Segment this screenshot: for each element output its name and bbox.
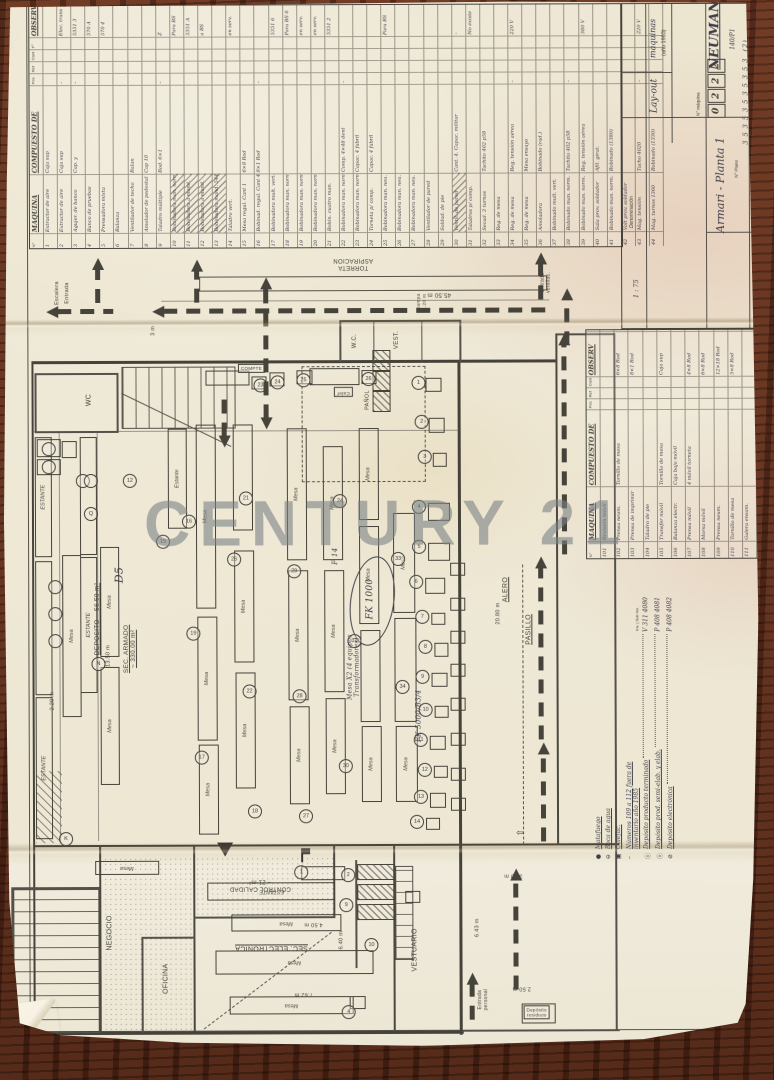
- dim-13-50: 13.50 m: [105, 645, 111, 667]
- item-number-circle: 4: [342, 1005, 356, 1019]
- workbench: Mesa: [62, 555, 82, 717]
- table-row: 1Extractor de aireCaja sup: [43, 6, 58, 248]
- dim-3m: 3 m: [150, 326, 156, 336]
- machine-unit: [357, 904, 395, 920]
- room-sec-armado: SEC. ARMADO ~ 330.00 m²: [123, 625, 138, 674]
- item-number-circle: 34: [396, 680, 410, 694]
- table-row: 19Bobinadora man. norm.en serv.: [297, 5, 312, 247]
- denomination-label: Denominación: [629, 196, 635, 228]
- table-row: 37Bobinado mult. vert.: [551, 4, 566, 246]
- item-number-circle: [42, 442, 56, 456]
- room-vest-top: VEST.: [394, 331, 401, 349]
- table-row: 40Sala prov. soldadorAfil. girat.: [593, 4, 608, 246]
- label-pasillo: PASILLO: [525, 614, 533, 645]
- flow-arrow: [194, 271, 199, 303]
- table-row: 15Mesa regul. Cant 16×8 Rod: [240, 5, 255, 247]
- machine-unit: [425, 578, 445, 594]
- plan-digit: 2: [707, 59, 725, 73]
- machines-label: máquinas: [648, 19, 657, 58]
- machine-unit: [405, 891, 420, 903]
- workbench: Mesa: [231, 914, 341, 931]
- machine-unit: [450, 664, 465, 677]
- dim-7-62: 7.62 m: [294, 991, 313, 997]
- item-number-circle: 2: [341, 868, 355, 882]
- table-row: 110Tornillo de mesa5×8 Rod: [728, 330, 743, 558]
- label-deposito-residuos: Depósito residuos: [524, 1005, 550, 1019]
- flow-arrow: [95, 269, 100, 303]
- workbench: Mesa: [95, 861, 159, 875]
- item-number-circle: [48, 634, 62, 648]
- table-row: 31Taladros p/ comp.No existe: [466, 5, 481, 247]
- table-row: 7Ventilador de techoBalan: [128, 6, 143, 248]
- note-d5: D5: [114, 567, 127, 583]
- table-row: 30Ventil. de paredCant. 4. Capac. milita…: [452, 5, 467, 247]
- item-number-circle: 24: [270, 375, 284, 389]
- workbench: Mesa: [324, 570, 344, 692]
- item-number-circle: [48, 580, 62, 594]
- machine-unit: [373, 390, 391, 412]
- machine-unit: [372, 350, 390, 372]
- legend-item: ⓧDepósito producto terminadoV 311 4080: [642, 597, 652, 859]
- flow-arrow: [513, 880, 518, 990]
- flag-marker: [301, 848, 310, 854]
- machine-unit: [450, 563, 465, 576]
- table-row: 109Prensa neum.12×18 Rod: [714, 330, 729, 558]
- plan-digit: 2: [707, 74, 725, 88]
- workbench: Mesa: [326, 698, 346, 794]
- workbench: [360, 630, 380, 722]
- item-number-circle: 17: [195, 751, 209, 765]
- table-row: 28Ventilador de pared: [424, 5, 439, 247]
- scale-value: 1 : 75: [632, 279, 640, 298]
- wall-line: [34, 373, 118, 375]
- machine-table-main: N°MAQUINACOMPUESTO DEPosRefCantF°OBSERV1…: [28, 3, 623, 249]
- dim-2-20: 2.20 m: [49, 692, 55, 711]
- room-deposito: DEPOSITO ~ 56.50 m²: [93, 583, 101, 655]
- item-number-circle: 3: [418, 450, 432, 464]
- room-wc-top: W.C.: [352, 334, 359, 348]
- wall-line: [199, 277, 200, 292]
- label-calef: Calef: [334, 387, 353, 397]
- machine-unit: [451, 733, 466, 746]
- entrance-arrow: [217, 843, 233, 857]
- table-row: 112Balanza electr.: [756, 330, 771, 558]
- dim-6-43: 6.43 m: [474, 918, 480, 937]
- table-row: 105Transfer móvilTornillo de mesaCaja su…: [657, 330, 672, 558]
- legend-item: ⊖Boca de agua: [604, 597, 612, 859]
- machine-unit: [451, 768, 466, 781]
- table-row: 14Taladro vert.en serv.: [226, 5, 241, 247]
- table-row: 6Balanza: [114, 6, 129, 248]
- label-torreta-aspiracion: TORRETA ASPIRACION: [333, 256, 373, 270]
- machine-unit: [431, 613, 445, 625]
- wall-line: [462, 1030, 620, 1032]
- table-row: 25Bobinadora man. neu.Para BS: [381, 5, 396, 247]
- layout-label: Lay-out: [649, 79, 659, 113]
- table-row: 111Galera ensam.: [742, 330, 757, 558]
- table-row: 16Bobinad. regul. Cant 48×1 Rod–: [255, 5, 270, 247]
- item-number-circle: 10: [364, 938, 378, 952]
- century21-watermark: CENTURY 21: [144, 485, 629, 561]
- item-number-circle: K: [59, 832, 73, 846]
- dim-4-50: 4.50 m: [304, 921, 323, 927]
- table-row: 11Bobinadora a mand.5351 A: [184, 6, 199, 248]
- wall-line: [459, 359, 557, 362]
- machine-unit: [451, 798, 466, 811]
- label-escalera: Escalera: [54, 281, 60, 305]
- wall-line: [116, 373, 118, 432]
- workbench: Mesa: [215, 950, 373, 975]
- wall-line: [33, 843, 619, 847]
- workbench: Mesa: [234, 550, 254, 662]
- item-number-circle: 25: [296, 373, 310, 387]
- table-row: 24Torneta p/ comp.Capac. 4 fabril: [367, 5, 382, 247]
- table-row: 12Bobinadora a mand.a BS: [198, 6, 213, 248]
- item-number-circle: 14: [410, 815, 424, 829]
- room-vestuario: VESTUARIO: [411, 928, 419, 971]
- table-row: 13Bobinadora mand. 5448: [212, 6, 227, 248]
- table-row: 23Bobinadora man. norm.Capac. 4 fabril: [353, 5, 368, 247]
- workbench: Mesa: [100, 667, 119, 785]
- room-control-calidad: CONTROL CALIDAD ~ 21 m²: [230, 877, 291, 891]
- table-row: 29Soldad. de pie: [438, 5, 453, 247]
- machine-unit: [432, 673, 448, 687]
- table-row: 9Taladro múltipleRod. 6×1–Z: [156, 6, 171, 248]
- machine-unit: [357, 864, 395, 880]
- flow-arrow: [263, 288, 268, 418]
- item-number-circle: 8: [418, 640, 432, 654]
- label-compte: COMPTE: [238, 364, 265, 373]
- item-number-circle: 12: [418, 763, 432, 777]
- room-sec-electronica: SEC. ELECTRONICA: [235, 943, 308, 951]
- table-row: 21Bobin. cuatro man.5351 2: [325, 5, 340, 247]
- item-number-circle: [42, 460, 56, 474]
- machine-unit: [435, 706, 449, 718]
- note-fk1000: FK 1000: [365, 579, 375, 620]
- item-number-circle: [84, 474, 98, 488]
- item-number-circle: 22: [243, 684, 257, 698]
- table-row: 39Bobinado man. norm.Reg. tensión aérea3…: [579, 4, 594, 246]
- flow-arrow: [222, 391, 227, 437]
- machine-unit: [434, 643, 448, 657]
- workbench: Mesa: [100, 547, 119, 657]
- table-row: 10Bobinadora man. norm.Para BS: [170, 6, 185, 248]
- workbench: ESTANTE: [36, 697, 53, 839]
- machine-unit: [430, 736, 446, 750]
- label-alero: ALERO: [502, 577, 510, 602]
- room-oficina: OFICINA: [163, 963, 171, 994]
- machine-unit: [450, 598, 465, 611]
- item-number-circle: 27: [299, 809, 313, 823]
- item-number-circle: 19: [186, 627, 200, 641]
- plan-number: 3 5 3 5 3 5 3 5 3 5 3 (2): [741, 39, 749, 145]
- table-row: 33Reg. de mesa: [494, 5, 509, 247]
- note-mesa-x2: Mesa X2 (4 equipos Transformadores): [347, 634, 361, 699]
- label-entrada-personal: Entrada personal: [478, 989, 490, 1011]
- table-row: 2Extractor de aireCaja sup–Elec. trans: [57, 6, 72, 248]
- workbench: [394, 618, 416, 722]
- wall-line: [459, 320, 461, 362]
- flow-arrow: [57, 309, 113, 314]
- arrow-glyph: ⇦: [516, 827, 524, 837]
- table-row: 35Reg. de mesaMesa ensayo: [522, 4, 537, 246]
- item-number-circle: 28: [293, 689, 307, 703]
- dim-45-50: 45.50 m: [427, 290, 451, 297]
- legend-item: ●Matafuego: [594, 597, 602, 859]
- drawing-no-label: N° Plano: [734, 160, 739, 178]
- machine-unit: [430, 793, 446, 808]
- wall-line: [421, 322, 422, 362]
- flow-arrow: [470, 984, 475, 1020]
- item-number-circle: 1: [411, 376, 425, 390]
- table-row: 27Bobinadora man. neu.: [410, 5, 425, 247]
- table-row: 107Prensa móvil4 móvil torneta4×8 Rod: [685, 330, 700, 558]
- item-number-circle: 18: [248, 804, 262, 818]
- item-number-circle: 9: [416, 670, 430, 684]
- machine-unit: [451, 698, 466, 711]
- item-number-circle: 30: [339, 759, 353, 773]
- wall-line: [34, 373, 36, 432]
- item-number-circle: [48, 607, 62, 621]
- blueprint-sheet: ESTANTEESTANTEESTANTEEstanteMesaMesaMesa…: [0, 0, 764, 1051]
- table-row: 26Bobinadora man. neu.: [396, 5, 411, 247]
- flow-arrow: [163, 307, 547, 313]
- machine-unit: [62, 441, 77, 458]
- machine-unit: [429, 418, 445, 433]
- wall-line: [199, 289, 547, 291]
- table-row: 8Amolador de pedestalCap 10: [142, 6, 157, 248]
- legend-item: ⊘Depósito electrónicaP 408 4082: [666, 597, 674, 859]
- legend: Inv. | Sub inv. ●Matafuego⊖Boca de agua▣…: [594, 597, 755, 860]
- table-row: 106Balanza electr.Caja bajo móvil: [671, 330, 686, 558]
- wall-line: [199, 275, 547, 277]
- wall-line: [339, 320, 461, 322]
- title-block: Denominación Lay-out máquinas (año 1983)…: [620, 3, 758, 329]
- table-row: 34Reg. de mesaReg. tensión aérea–220 V: [508, 5, 523, 247]
- workbench: Mesa: [362, 726, 382, 802]
- machine-unit: [426, 818, 440, 830]
- wall-line: [522, 565, 525, 845]
- machine-unit: [433, 453, 447, 467]
- workbench: Mesa: [230, 996, 354, 1014]
- workbench: Mesa: [290, 706, 310, 804]
- machine-unit: [357, 884, 395, 900]
- wall-line: [555, 333, 559, 845]
- item-number-circle: 7: [415, 610, 429, 624]
- wall-line: [103, 857, 194, 1033]
- item-number-circle: Q: [84, 507, 98, 521]
- table-row: 17Bobinadora mult. vert.5351 6: [269, 5, 284, 247]
- room-wc-left: WC: [86, 394, 94, 406]
- sheet-title: Armari - Planta 1: [714, 137, 727, 233]
- table-row: 22Bobinadora man. norm.Comp. 4×48 dent–: [339, 5, 354, 247]
- legend-columns-label: Inv. | Sub inv.: [634, 597, 639, 641]
- machine-unit: [434, 766, 448, 778]
- table-row: 36AmoladoraBobinado (rad.): [536, 4, 551, 246]
- item-number-circle: 13: [414, 790, 428, 804]
- table-row: 108Morsa móvil6×8 Rod: [700, 330, 715, 558]
- table-row: 32Secad. 3 turnosTachito 402 p58: [480, 5, 495, 247]
- paper-corner-curl: [9, 998, 60, 1040]
- table-row: 103Prensa de imprimir8×1 Rod: [629, 330, 644, 558]
- plan-digit: 0: [708, 104, 726, 118]
- table-row: 38Bobinado man. norm.Tachito 402 p58–: [565, 4, 580, 246]
- plan-digit: 2: [707, 89, 725, 103]
- workbench: [309, 368, 359, 385]
- legend-item: ⓧDepósito prod. semi-elab. y elab.P 408 …: [654, 597, 664, 859]
- table-row: 5Prensadora mixta570 4: [100, 6, 115, 248]
- label-entrada: Entrada: [64, 282, 70, 303]
- table-row: 18Bobinadora man. norm.Para BS 6: [283, 5, 298, 247]
- item-number-circle: 2: [415, 415, 429, 429]
- workbench: Mesa: [197, 617, 217, 741]
- plan-digits: 0222: [705, 58, 725, 118]
- note-fk5000: FK 5000/B3/4: [415, 690, 423, 743]
- item-number-circle: 1: [294, 865, 308, 879]
- workbench: [80, 437, 97, 555]
- dim-6-40: 6.40 m: [338, 931, 344, 950]
- company-sub: 140/P1: [729, 28, 736, 49]
- fold-crease: [0, 0, 760, 1]
- machine-unit: [450, 631, 465, 644]
- item-number-circle: N: [91, 657, 105, 671]
- wall-line: [339, 320, 341, 362]
- machines-sub: (año 1983): [661, 29, 667, 56]
- item-number-circle: 26: [361, 372, 375, 386]
- table-row: 104Taladro de pie: [643, 330, 658, 558]
- item-number-circle: 29: [287, 564, 301, 578]
- flow-arrow: [538, 567, 544, 739]
- legend-item: ▣Calefac.: [615, 597, 623, 859]
- machine-no-label: N° máquina: [695, 92, 700, 116]
- room-negocio: NEGOCIO: [106, 915, 114, 950]
- item-number-circle: 12: [123, 474, 137, 488]
- dim-20-80: 20.80 m: [495, 603, 501, 625]
- table-row: 3Agujer. de bancoCap. y–5351 3: [71, 6, 86, 248]
- machine-unit: [425, 378, 441, 392]
- item-number-circle: 9: [339, 898, 353, 912]
- label-panol: PAÑOL: [364, 390, 370, 410]
- wall-line: [161, 299, 549, 301]
- flow-arrow: [541, 753, 546, 841]
- flow-arrow: [538, 263, 543, 299]
- workbench: Mesa: [288, 570, 308, 700]
- table-row: 4Banco de pruebas570 A: [85, 6, 100, 248]
- item-number-circle: 6: [409, 575, 423, 589]
- table-row: 20Bobinadora man. norm.en serv.: [311, 5, 326, 247]
